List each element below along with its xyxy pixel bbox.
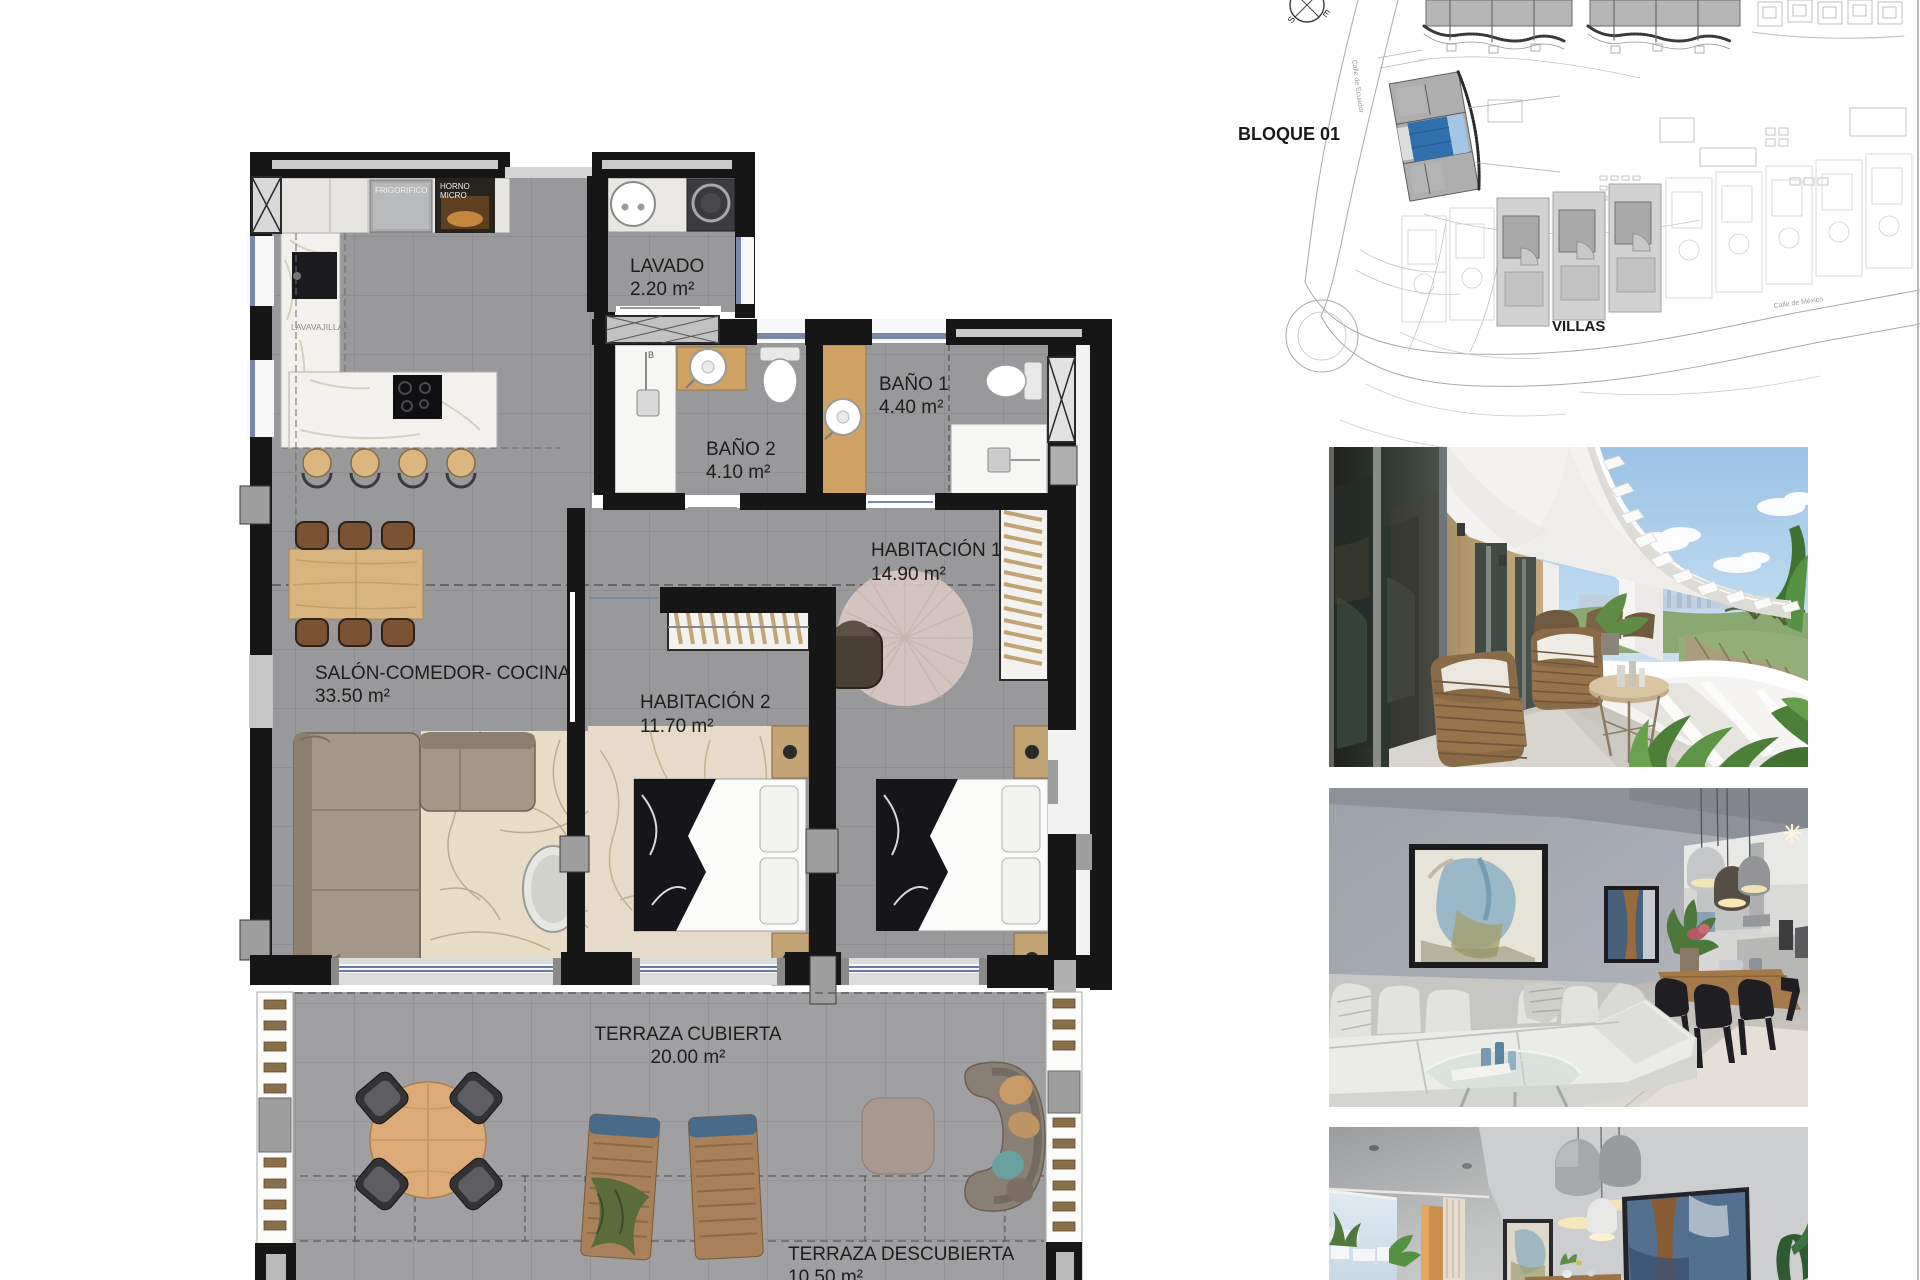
- svg-text:BLOQUE 01: BLOQUE 01: [1238, 124, 1340, 144]
- svg-text:HORNO: HORNO: [440, 182, 470, 191]
- svg-text:SALÓN-COMEDOR- COCINA: SALÓN-COMEDOR- COCINA: [315, 662, 571, 684]
- svg-text:4.10 m²: 4.10 m²: [706, 462, 770, 483]
- svg-text:BAÑO 2: BAÑO 2: [706, 438, 776, 460]
- svg-text:20.00 m²: 20.00 m²: [651, 1047, 726, 1068]
- svg-text:E: E: [1321, 8, 1332, 20]
- svg-text:VILLAS: VILLAS: [1552, 318, 1605, 335]
- svg-text:4.40 m²: 4.40 m²: [879, 397, 943, 418]
- svg-text:HABITACIÓN 2: HABITACIÓN 2: [640, 691, 771, 713]
- svg-text:BAÑO 1: BAÑO 1: [879, 373, 949, 395]
- svg-text:2.20 m²: 2.20 m²: [630, 279, 694, 300]
- svg-text:TERRAZA CUBIERTA: TERRAZA CUBIERTA: [594, 1024, 782, 1045]
- svg-text:Calle de México: Calle de México: [1773, 296, 1823, 310]
- svg-text:LAVADO: LAVADO: [630, 256, 704, 277]
- svg-text:MICRO: MICRO: [440, 191, 467, 200]
- svg-text:HABITACIÓN 1: HABITACIÓN 1: [871, 539, 1002, 561]
- svg-text:33.50 m²: 33.50 m²: [315, 686, 390, 707]
- svg-text:B: B: [648, 350, 654, 360]
- svg-text:TERRAZA DESCUBIERTA: TERRAZA DESCUBIERTA: [788, 1244, 1015, 1265]
- svg-text:Calle de Ecuador: Calle de Ecuador: [1350, 59, 1364, 114]
- svg-text:LAVAVAJILLAS: LAVAVAJILLAS: [291, 322, 349, 332]
- svg-text:11.70 m²: 11.70 m²: [640, 716, 714, 737]
- svg-text:14.90 m²: 14.90 m²: [871, 564, 946, 585]
- svg-text:FRIGORIFICO: FRIGORIFICO: [375, 186, 427, 195]
- svg-text:10.50 m²: 10.50 m²: [788, 1267, 863, 1280]
